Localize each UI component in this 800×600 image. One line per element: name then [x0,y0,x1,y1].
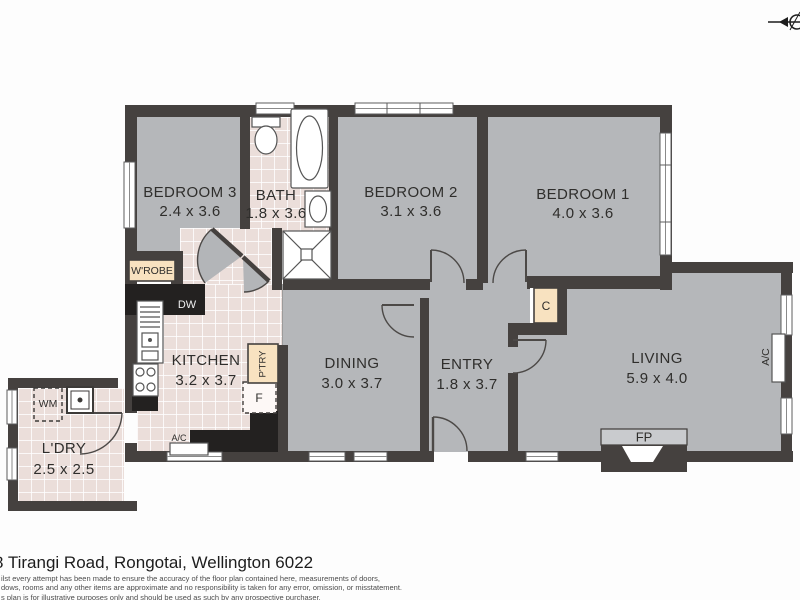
disclaimer-line-2: dows, rooms and any other items are appr… [1,583,402,592]
living-window-right-b [781,398,792,434]
door-wedges [198,229,269,292]
dining-window-a [309,452,345,461]
floor-plan-page: BEDROOM 3 2.4 x 3.6 BATH 1.8 x 3.6 BEDRO… [0,0,800,600]
dining-door [382,305,414,337]
bedroom1-door [493,250,526,283]
ac-living-unit [772,334,785,382]
fridge-label: F [255,391,262,405]
pantry-label: P'TRY [258,351,269,378]
bath-window [256,103,294,114]
bedroom3-dims: 2.4 x 3.6 [159,203,220,220]
bedroom2-dims: 3.1 x 3.6 [380,203,441,220]
laundry-tub-icon [67,387,93,413]
bedroom3-window [124,162,135,228]
bathtub-icon [291,109,328,188]
property-address: 8 Tirangi Road, Rongotai, Wellington 602… [0,553,313,573]
cupboard-label: C [542,299,551,313]
living-window-bottom [526,452,558,461]
bedroom1-window [660,133,671,255]
living-label: LIVING [631,350,683,367]
toilet-icon [252,117,280,154]
laundry-window-a [7,390,17,424]
floor-plan-graphics [0,0,800,600]
laundry-label: L'DRY [42,440,87,457]
windows [7,103,792,480]
kitchen-label: KITCHEN [172,352,241,369]
bedroom2-label: BEDROOM 2 [364,184,458,201]
bath-label: BATH [256,187,297,204]
dishwasher-label: DW [168,297,206,313]
disclaimer-line-3: s plan is for illustrative purposes only… [1,593,402,600]
vanity-icon [305,191,331,227]
bedroom1-dims: 4.0 x 3.6 [552,205,613,222]
entry-label: ENTRY [441,356,494,373]
washing-machine-label: WM [39,398,58,410]
dining-window-b [354,452,387,461]
front-door [433,417,467,451]
wardrobe-label: W'ROBE [129,260,175,281]
bedroom1-label: BEDROOM 1 [536,186,630,203]
ac-kitchen-unit [170,443,208,455]
bedroom3-label: BEDROOM 3 [143,184,237,201]
laundry-window-b [7,448,17,480]
stove-icon [133,364,158,396]
ac-kitchen-label: A/C [171,433,186,443]
laundry-dims: 2.5 x 2.5 [33,461,94,478]
living-dims: 5.9 x 4.0 [626,370,687,387]
sink-unit-icon [137,301,163,363]
dining-label: DINING [325,355,380,372]
ac-living-label: A/C [760,348,772,366]
bath-dims: 1.8 x 3.6 [245,205,306,222]
compass-icon [768,12,800,30]
bedroom2-window [355,103,453,114]
dining-dims: 3.0 x 3.7 [321,375,382,392]
disclaimer-line-1: ilst every attempt has been made to ensu… [1,574,402,583]
shower-icon [283,231,331,279]
entry-dims: 1.8 x 3.7 [436,376,497,393]
fireplace-label: FP [636,430,653,445]
living-window-right-a [781,295,792,335]
disclaimer-text: ilst every attempt has been made to ensu… [1,574,402,600]
bedroom2-door [431,250,464,283]
kitchen-dims: 3.2 x 3.7 [175,372,236,389]
